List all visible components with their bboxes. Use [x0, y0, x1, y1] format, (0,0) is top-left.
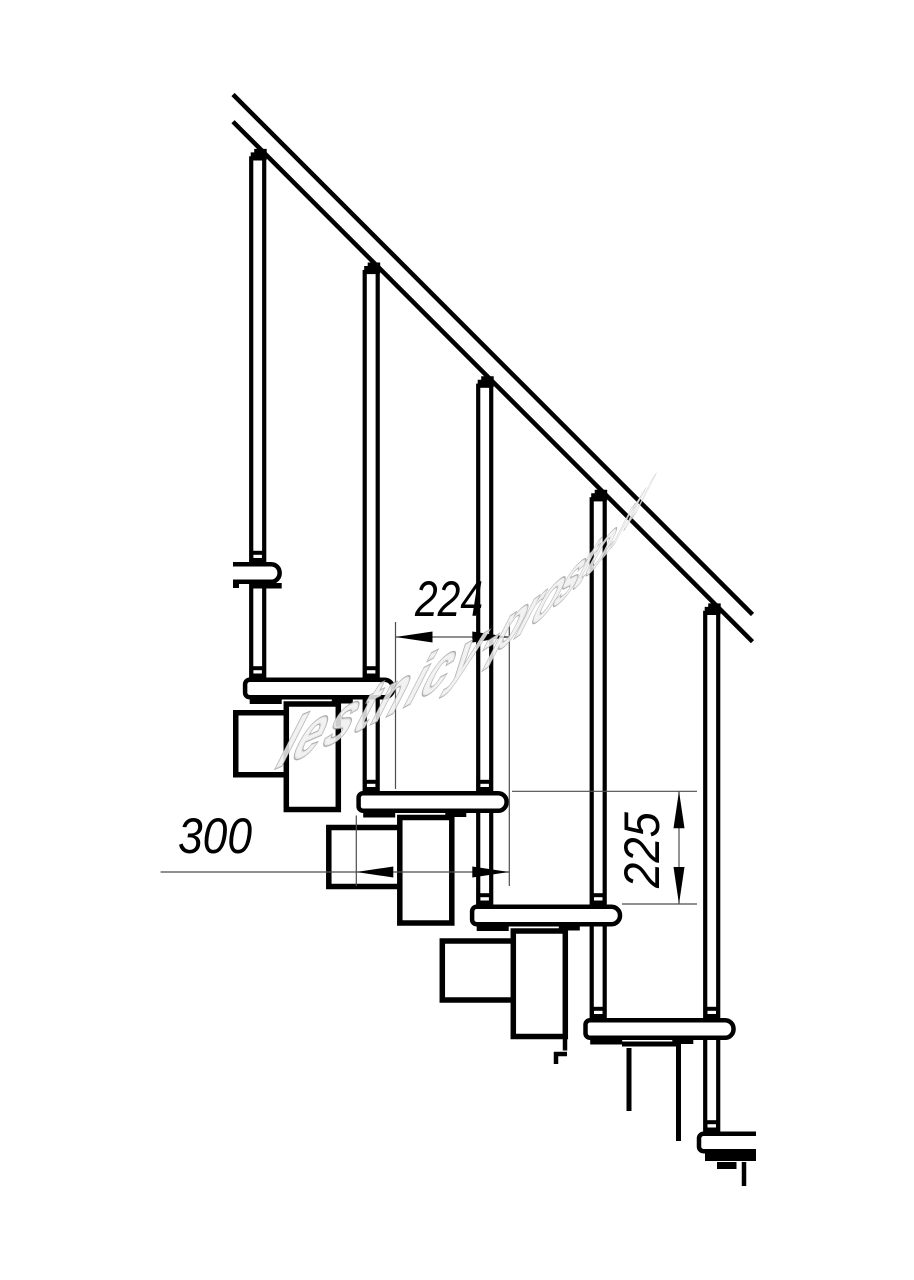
- svg-text:u: u: [612, 443, 673, 552]
- svg-text:300: 300: [178, 808, 252, 864]
- svg-text:225: 225: [614, 812, 670, 889]
- svg-text:224: 224: [414, 571, 483, 627]
